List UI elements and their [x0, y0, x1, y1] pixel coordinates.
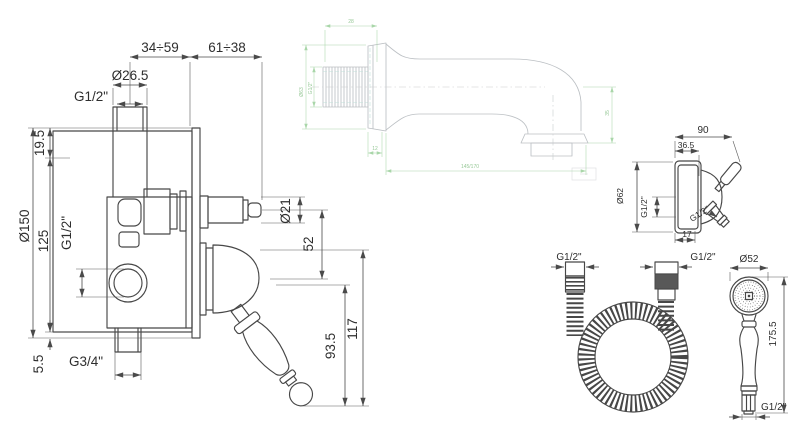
dim-spindle-diameter: Ø21 [278, 198, 293, 224]
dim-bracket-ball-offset: 36.5 [678, 140, 695, 150]
dim-bottom-port-thread: G3/4" [69, 354, 103, 369]
dim-bracket-flange-diameter: Ø62 [615, 188, 625, 204]
hose-dimensions: G1/2" G1/2" [551, 252, 716, 267]
technical-drawing-sheet: 34÷59 61÷38 Ø26.5 G1/2" 19.5 Ø150 125 5.… [0, 0, 800, 442]
dim-axis-spacing: 52 [301, 236, 316, 251]
dim-spout-outlet-drop: 35 [605, 110, 611, 116]
bracket-drawing: 90 36.5 Ø62 G1/2" G1/2" 17 [615, 125, 743, 243]
dim-bracket-width: 90 [697, 125, 709, 136]
dim-plate-offset: 5.5 [31, 355, 46, 374]
mixer-lever-handle [225, 300, 319, 412]
handshower-drawing: Ø52 175.5 G1/2" [729, 254, 788, 420]
mixer-side-port [109, 232, 147, 302]
spout-note-box [572, 168, 596, 180]
dim-spout-thread-length: 28 [348, 19, 354, 25]
dim-side-port-thread: G1/2" [59, 216, 74, 250]
dim-span-left: 34÷59 [141, 40, 178, 55]
dim-handshower-head-diameter: Ø52 [740, 254, 759, 265]
handshower-handle [740, 315, 758, 415]
dim-top-thread: G1/2" [74, 89, 108, 104]
dim-spout-flange-diameter: Ø63 [299, 87, 305, 97]
spout-drawing: 28 Ø63 G1/2" 12 145/170 35 [299, 19, 616, 180]
dim-plate-diameter: Ø150 [17, 209, 32, 242]
mixer-cartridge-stem [118, 189, 261, 234]
dim-hose-right-thread: G1/2" [690, 252, 716, 263]
hose-left-connector [566, 262, 585, 336]
dim-span-right: 61÷38 [208, 40, 245, 55]
mixer-dimensions: 34÷59 61÷38 Ø26.5 G1/2" 19.5 Ø150 125 5.… [17, 40, 369, 406]
dim-handshower-thread: G1/2" [761, 402, 787, 413]
dim-spout-flange-depth: 12 [372, 146, 378, 152]
dim-top-pipe-od: Ø26.5 [112, 68, 149, 83]
dim-bracket-outlet-spacing: 17 [682, 229, 692, 239]
hose-coil [578, 302, 688, 412]
dim-hose-left-thread: G1/2" [556, 252, 582, 263]
dim-handle-length: 93.5 [323, 333, 338, 359]
dim-offset-top: 19.5 [32, 130, 47, 156]
dim-handshower-length: 175.5 [768, 321, 779, 346]
handshower-head [730, 277, 768, 315]
bracket-flange [675, 161, 701, 233]
technical-drawing: 34÷59 61÷38 Ø26.5 G1/2" 19.5 Ø150 125 5.… [0, 0, 800, 442]
dim-handle-drop: 117 [345, 318, 360, 340]
dim-spout-projection: 145/170 [461, 164, 479, 170]
mixer-trim-plate [192, 128, 200, 338]
mixer-drawing: 34÷59 61÷38 Ø26.5 G1/2" 19.5 Ø150 125 5.… [17, 40, 369, 412]
spout-dimensions: 28 Ø63 G1/2" 12 145/170 35 [299, 19, 616, 175]
dim-body-height: 125 [36, 230, 51, 253]
dim-bracket-inlet-thread: G1/2" [639, 196, 649, 217]
mixer-dome [200, 243, 259, 315]
hose-drawing: G1/2" G1/2" [551, 252, 716, 412]
mixer-top-port [113, 107, 147, 197]
dim-spout-thread: G1/2" [308, 81, 314, 94]
